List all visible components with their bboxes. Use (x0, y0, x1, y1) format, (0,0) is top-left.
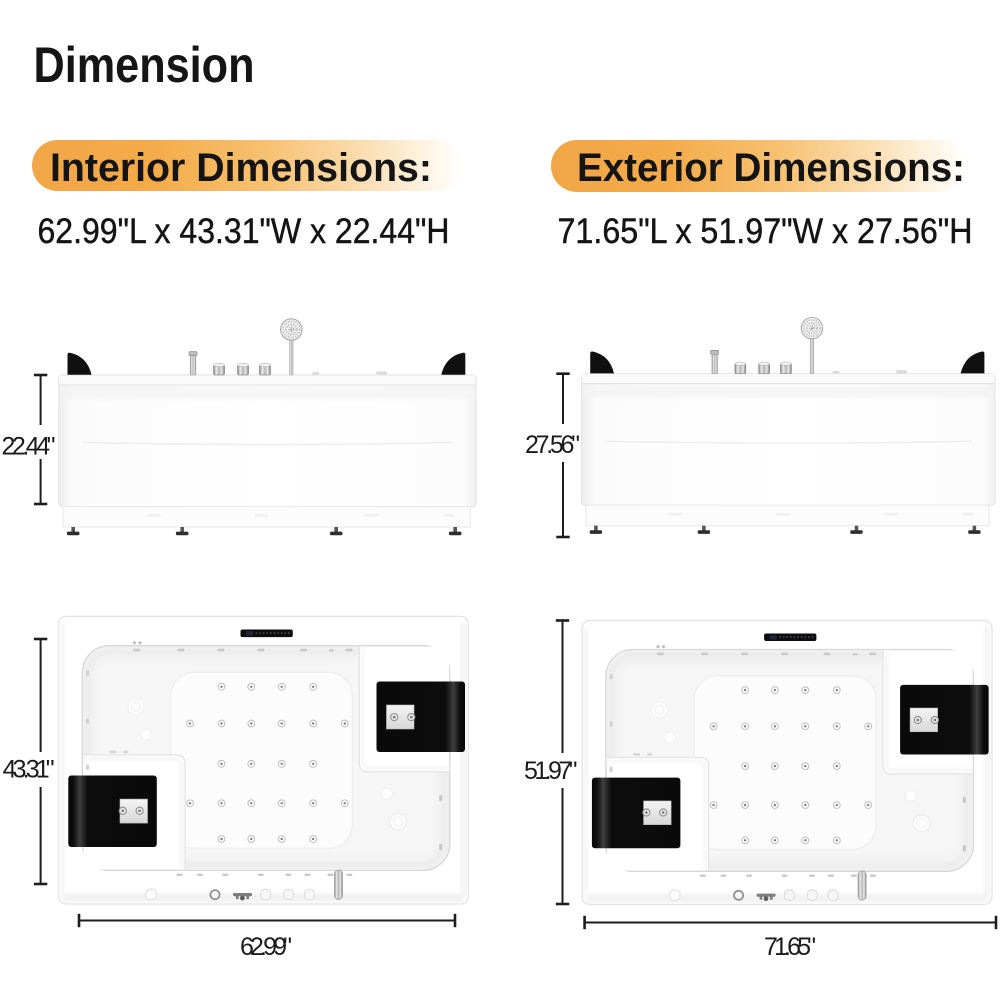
svg-text:51.97": 51.97" (524, 757, 578, 785)
svg-text:71.65": 71.65" (764, 933, 816, 961)
svg-text:Interior Dimensions:: Interior Dimensions: (50, 146, 432, 190)
svg-text:Dimension: Dimension (34, 37, 255, 93)
svg-text:43.31": 43.31" (3, 756, 55, 784)
svg-text:27.56": 27.56" (525, 431, 580, 459)
svg-text:22.44": 22.44" (2, 433, 56, 461)
svg-text:62.99": 62.99" (240, 933, 292, 961)
svg-text:62.99"L x 43.31"W x 22.44"H: 62.99"L x 43.31"W x 22.44"H (38, 212, 450, 251)
svg-text:71.65"L x 51.97"W x 27.56"H: 71.65"L x 51.97"W x 27.56"H (558, 212, 973, 251)
svg-text:Exterior Dimensions:: Exterior Dimensions: (577, 146, 965, 190)
